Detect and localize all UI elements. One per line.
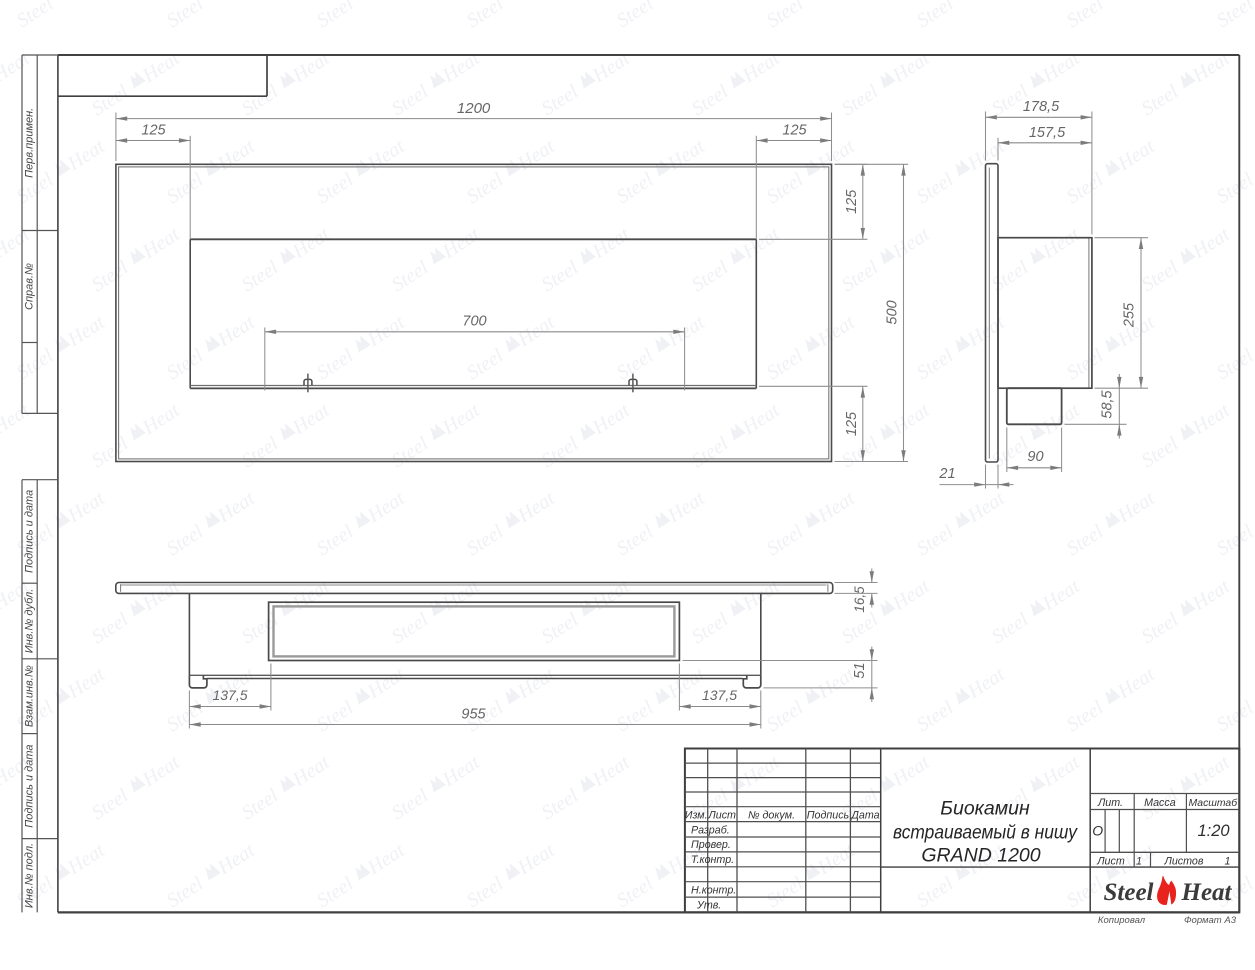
svg-text:955: 955 [461, 707, 486, 723]
svg-text:1200: 1200 [457, 100, 491, 117]
svg-text:Справ.№: Справ.№ [24, 263, 36, 310]
svg-text:Т.контр.: Т.контр. [691, 854, 734, 866]
svg-text:встраиваемый в нишу: встраиваемый в нишу [893, 822, 1078, 844]
svg-text:16,5: 16,5 [852, 586, 867, 613]
svg-text:51: 51 [852, 662, 868, 678]
svg-text:125: 125 [844, 189, 860, 214]
svg-text:Инв.№ подл.: Инв.№ подл. [24, 843, 36, 908]
svg-text:О: О [1092, 823, 1103, 839]
svg-text:500: 500 [885, 300, 901, 324]
svg-text:90: 90 [1027, 449, 1043, 465]
svg-text:Лист: Лист [707, 810, 736, 822]
svg-text:58,5: 58,5 [1100, 389, 1116, 418]
svg-text:Подпись и дата: Подпись и дата [24, 490, 36, 573]
svg-text:Формат А3: Формат А3 [1184, 915, 1237, 926]
svg-text:Н.контр.: Н.контр. [691, 884, 736, 896]
svg-text:Дата: Дата [850, 810, 879, 822]
svg-text:125: 125 [844, 411, 860, 436]
svg-text:137,5: 137,5 [702, 687, 737, 703]
svg-text:Копировал: Копировал [1098, 915, 1146, 926]
svg-text:1: 1 [1136, 855, 1142, 867]
svg-text:178,5: 178,5 [1023, 99, 1060, 115]
svg-text:Подпись и дата: Подпись и дата [24, 744, 36, 827]
svg-text:GRAND 1200: GRAND 1200 [921, 845, 1040, 867]
svg-text:1: 1 [1225, 855, 1231, 867]
svg-text:Утв.: Утв. [696, 899, 721, 911]
svg-text:Взам.инв.№: Взам.инв.№ [24, 665, 36, 727]
svg-text:Подпись: Подпись [807, 810, 849, 822]
svg-text:Перв.примен.: Перв.примен. [24, 108, 36, 178]
svg-text:125: 125 [782, 123, 807, 139]
svg-text:1:20: 1:20 [1197, 822, 1230, 840]
svg-text:Heat: Heat [1181, 879, 1233, 906]
svg-text:Лист: Лист [1096, 855, 1125, 867]
svg-text:№ докум.: № докум. [748, 810, 795, 822]
svg-text:Инв.№ дубл.: Инв.№ дубл. [24, 589, 36, 654]
svg-text:21: 21 [938, 466, 955, 482]
svg-text:255: 255 [1122, 302, 1138, 328]
svg-text:157,5: 157,5 [1029, 125, 1066, 141]
svg-text:Изм.: Изм. [685, 810, 708, 822]
svg-text:125: 125 [141, 123, 166, 139]
svg-text:Разраб.: Разраб. [691, 824, 730, 836]
svg-text:137,5: 137,5 [212, 687, 247, 703]
svg-text:Steel: Steel [1104, 879, 1154, 906]
svg-text:Листов: Листов [1164, 855, 1204, 867]
svg-text:700: 700 [462, 313, 486, 329]
svg-text:Масса: Масса [1144, 797, 1176, 809]
svg-text:Биокамин: Биокамин [940, 798, 1030, 820]
svg-text:Масштаб: Масштаб [1189, 797, 1239, 809]
svg-text:Провер.: Провер. [691, 839, 731, 851]
svg-text:Лит.: Лит. [1097, 797, 1123, 809]
